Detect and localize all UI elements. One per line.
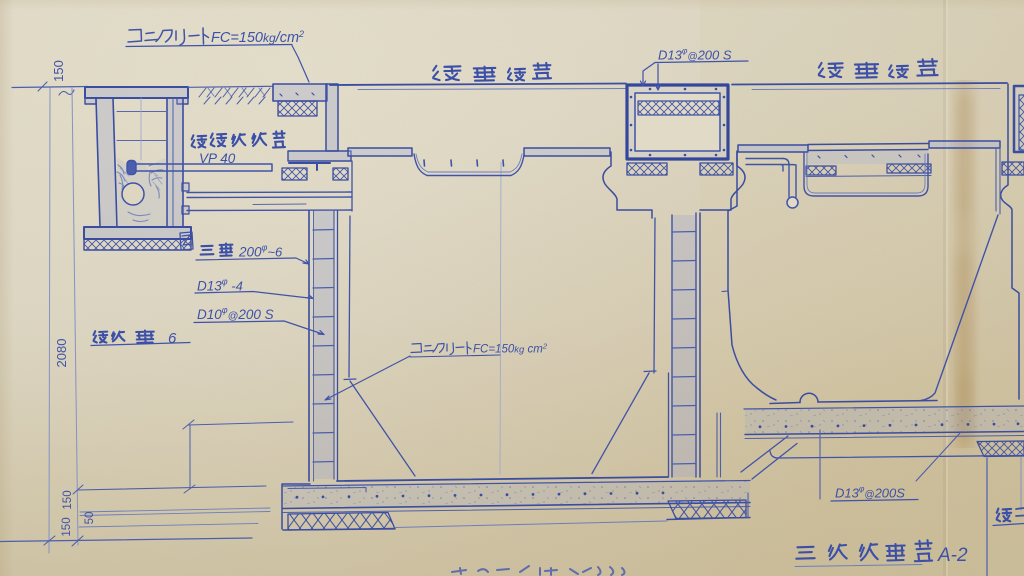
svg-text:6: 6 bbox=[168, 330, 177, 347]
svg-text:200φ~6: 200φ~6 bbox=[238, 243, 283, 260]
svg-text:150: 150 bbox=[51, 60, 66, 82]
svg-text:A-2: A-2 bbox=[937, 545, 968, 566]
svg-text:2080: 2080 bbox=[54, 339, 69, 368]
svg-text:150: 150 bbox=[61, 517, 73, 536]
svg-text:150: 150 bbox=[62, 490, 74, 509]
svg-text:FC=150kg cm2: FC=150kg cm2 bbox=[473, 342, 548, 356]
svg-text:FC=150kg/cm2: FC=150kg/cm2 bbox=[211, 29, 304, 46]
svg-text:50: 50 bbox=[84, 512, 96, 525]
svg-text:D13φ -4: D13φ -4 bbox=[197, 277, 243, 294]
svg-text:VP 40: VP 40 bbox=[199, 151, 236, 166]
